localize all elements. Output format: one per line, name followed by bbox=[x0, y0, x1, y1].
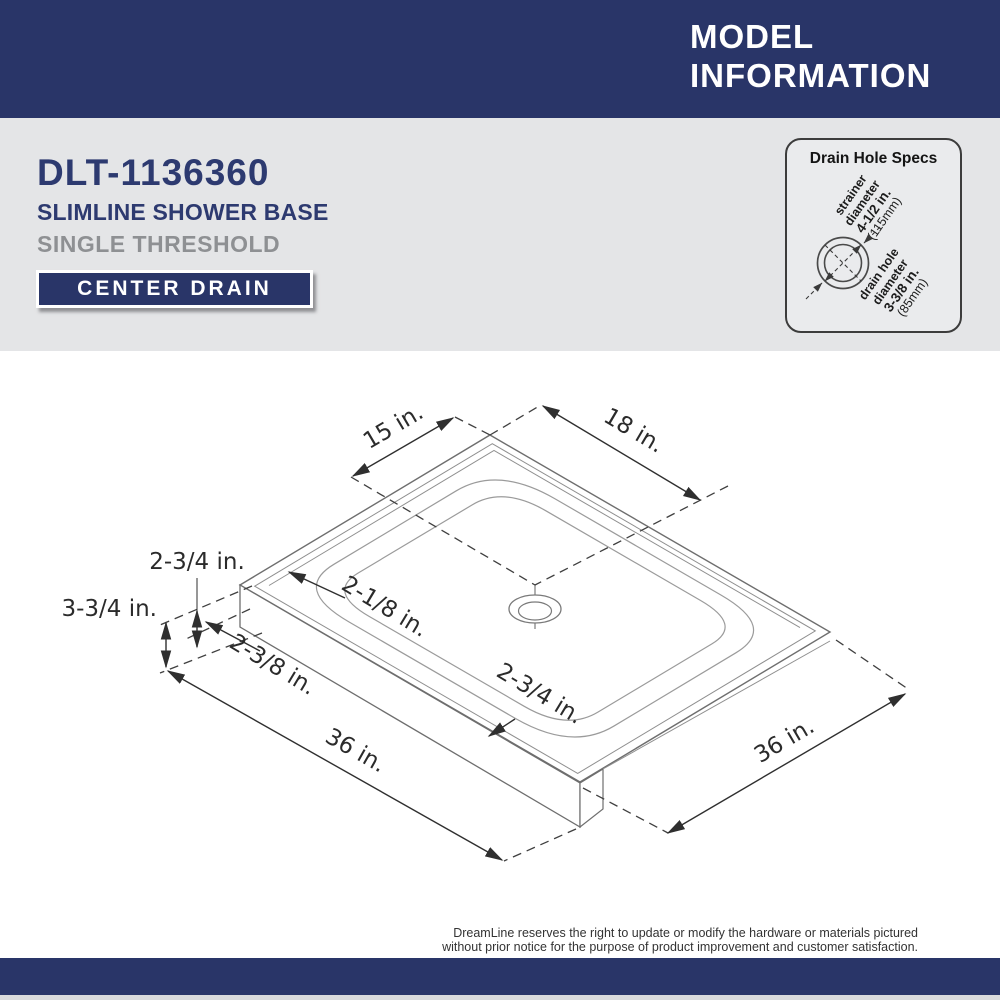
footer-strip bbox=[0, 995, 1000, 1000]
dim-label-36in-right: 36 in. bbox=[750, 713, 819, 768]
shower-base-diagram: 15 in. 18 in. 2-3/4 in. 3-3/4 in. 2-1/8 … bbox=[0, 0, 1000, 1000]
spec-sheet-page: MODEL INFORMATION DLT-1136360 SLIMLINE S… bbox=[0, 0, 1000, 1000]
disclaimer-line2: without prior notice for the purpose of … bbox=[300, 940, 918, 954]
dim-label-overall-height: 3-3/4 in. bbox=[61, 596, 157, 622]
footer-bar bbox=[0, 958, 1000, 995]
dim-label-18in: 18 in. bbox=[599, 403, 668, 458]
dim-label-15in: 15 in. bbox=[359, 399, 428, 454]
dim-label-ledge-height: 2-3/4 in. bbox=[149, 549, 245, 575]
shower-base-outline bbox=[240, 435, 830, 827]
dim-label-36in-left: 36 in. bbox=[321, 724, 390, 779]
disclaimer-line1: DreamLine reserves the right to update o… bbox=[300, 926, 918, 940]
disclaimer-text: DreamLine reserves the right to update o… bbox=[300, 926, 918, 954]
